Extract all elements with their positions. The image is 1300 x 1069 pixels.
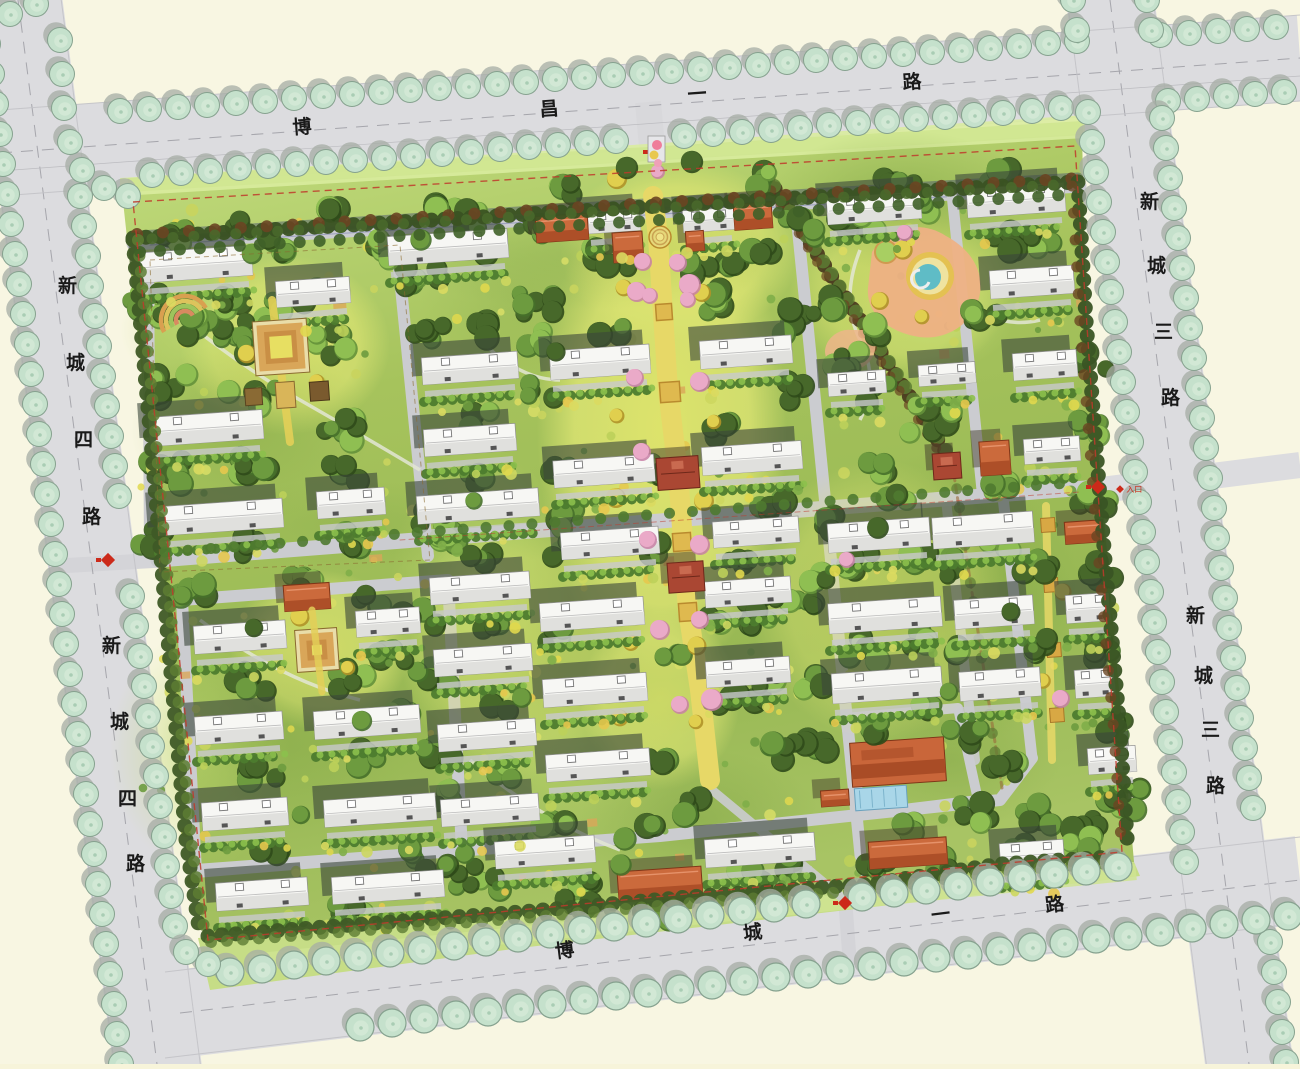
svg-text:路: 路 (1206, 774, 1226, 797)
svg-text:路: 路 (1161, 386, 1181, 409)
svg-text:城: 城 (66, 351, 85, 374)
svg-text:城: 城 (1147, 254, 1166, 277)
svg-text:新: 新 (1140, 190, 1159, 213)
svg-text:一: 一 (930, 904, 951, 927)
svg-text:路: 路 (1044, 892, 1067, 917)
svg-text:路: 路 (902, 70, 924, 94)
svg-text:昌: 昌 (539, 98, 560, 121)
svg-text:四: 四 (118, 789, 137, 810)
svg-text:路: 路 (82, 505, 102, 528)
svg-text:城: 城 (110, 710, 129, 733)
svg-text:路: 路 (126, 852, 146, 875)
svg-text:城: 城 (1194, 664, 1213, 687)
svg-text:一: 一 (687, 84, 707, 106)
svg-text:城: 城 (742, 920, 764, 945)
svg-text:新: 新 (58, 274, 77, 297)
svg-text:◆ 入口: ◆ 入口 (1116, 485, 1142, 494)
svg-text:新: 新 (1186, 604, 1205, 627)
svg-text:博: 博 (292, 115, 313, 139)
svg-text:新: 新 (102, 634, 121, 657)
svg-text:三: 三 (1154, 322, 1173, 343)
svg-text:四: 四 (74, 430, 93, 451)
svg-text:博: 博 (554, 938, 576, 963)
svg-text:三: 三 (1201, 720, 1220, 741)
